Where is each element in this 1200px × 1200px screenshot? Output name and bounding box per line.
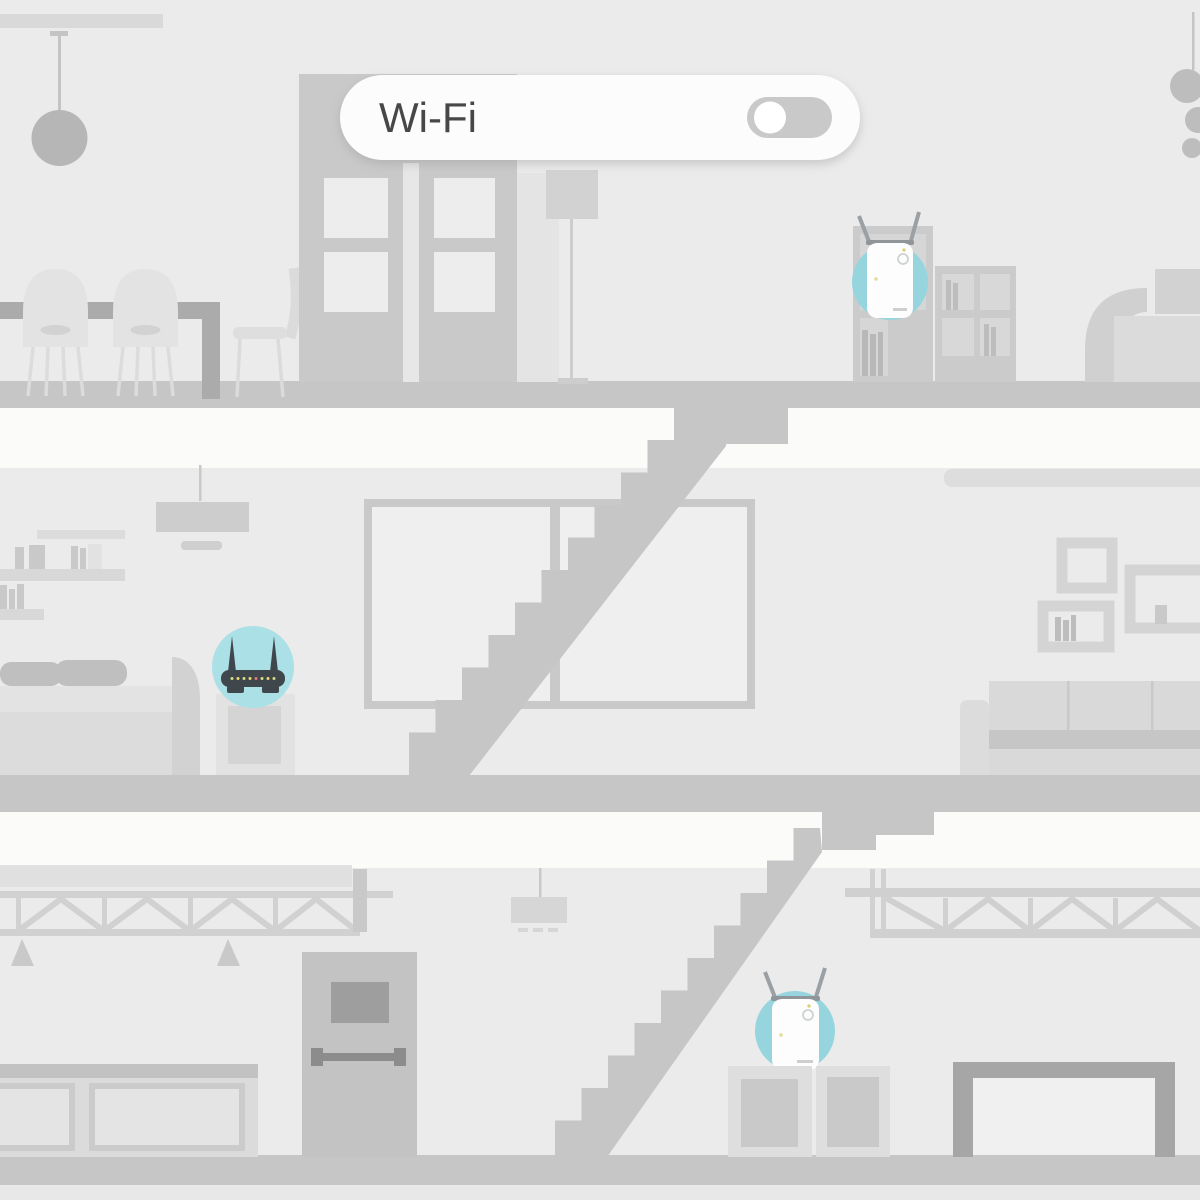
svg-text:Wi-Fi: Wi-Fi (379, 94, 477, 141)
